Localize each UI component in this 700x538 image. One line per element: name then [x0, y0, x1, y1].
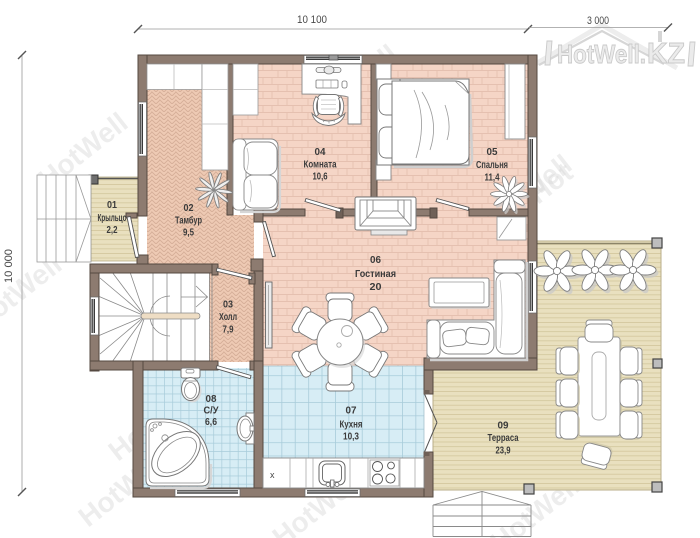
svg-text:08: 08 [206, 393, 217, 405]
svg-text:10,3: 10,3 [343, 431, 359, 443]
svg-text:03: 03 [223, 299, 233, 311]
svg-text:10,6: 10,6 [313, 171, 328, 183]
svg-text:20: 20 [370, 281, 382, 293]
svg-text:Комната: Комната [304, 159, 337, 171]
svg-text:04: 04 [315, 146, 326, 158]
svg-text:Крыльцо: Крыльцо [98, 212, 127, 224]
svg-text:09: 09 [498, 420, 509, 432]
svg-text:01: 01 [107, 199, 117, 211]
svg-text:7,9: 7,9 [223, 324, 234, 336]
svg-text:KZ: KZ [647, 38, 685, 70]
svg-text:Холл: Холл [219, 311, 237, 323]
svg-text:11,4: 11,4 [485, 172, 500, 184]
svg-text:Тамбур: Тамбур [175, 215, 202, 227]
svg-text:10 000: 10 000 [3, 249, 15, 283]
svg-text:6,6: 6,6 [205, 416, 217, 428]
svg-text:Гостиная: Гостиная [355, 268, 396, 280]
svg-text:06: 06 [370, 254, 381, 266]
svg-text:3 000: 3 000 [587, 15, 609, 27]
svg-text:07: 07 [346, 405, 357, 417]
svg-text:9,5: 9,5 [183, 227, 194, 239]
svg-text:HotWell.: HotWell. [557, 39, 646, 69]
svg-text:02: 02 [184, 202, 194, 214]
svg-text:x: x [270, 470, 275, 480]
svg-text:2,2: 2,2 [107, 224, 118, 236]
svg-text:С/У: С/У [204, 405, 219, 417]
svg-text:23,9: 23,9 [496, 445, 511, 457]
svg-text:Терраса: Терраса [488, 432, 519, 444]
svg-text:Кухня: Кухня [340, 419, 363, 431]
svg-text:10 100: 10 100 [297, 14, 327, 26]
svg-text:Спальня: Спальня [476, 159, 508, 171]
svg-text:05: 05 [487, 146, 498, 158]
